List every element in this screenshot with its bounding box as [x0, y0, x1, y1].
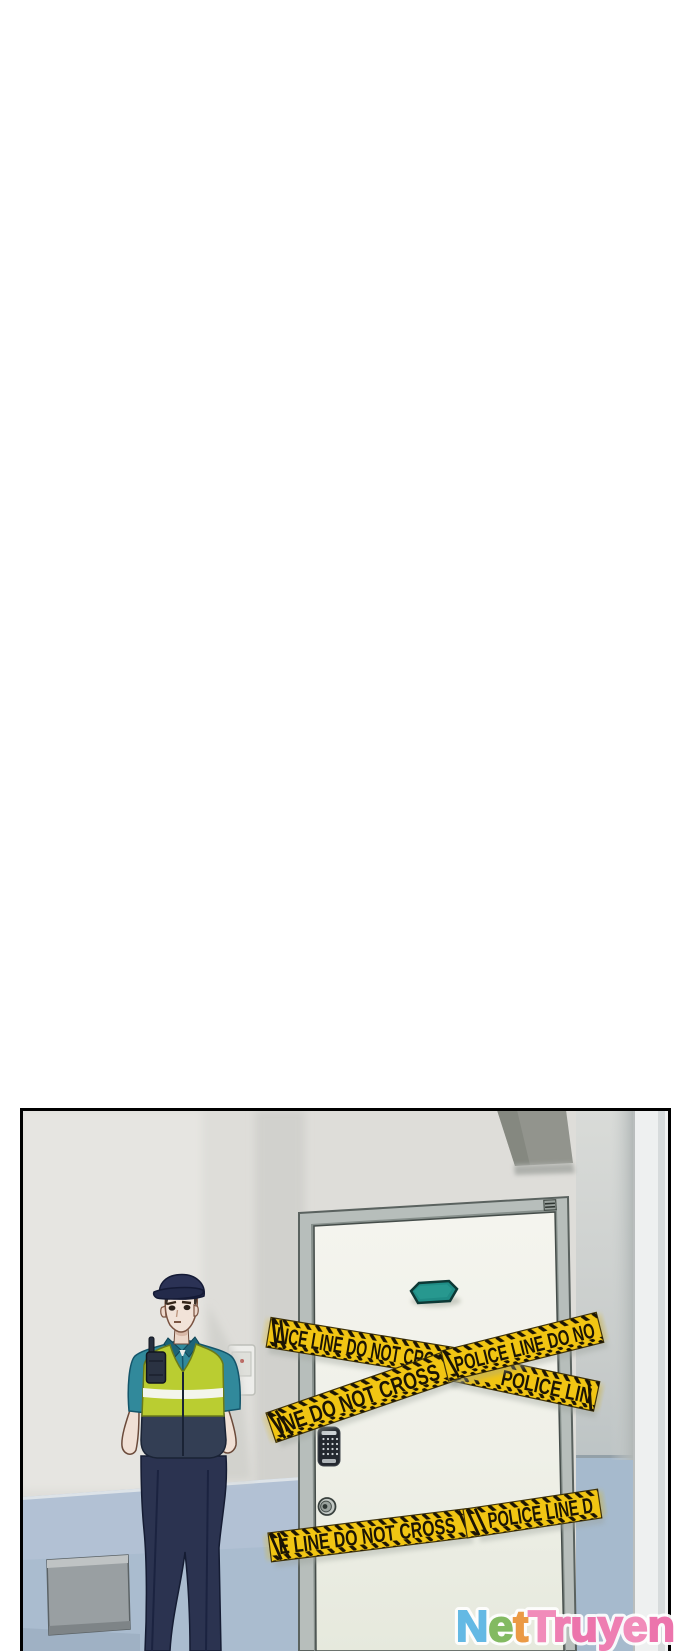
svg-text:NetTruyen: NetTruyen	[456, 1602, 675, 1651]
